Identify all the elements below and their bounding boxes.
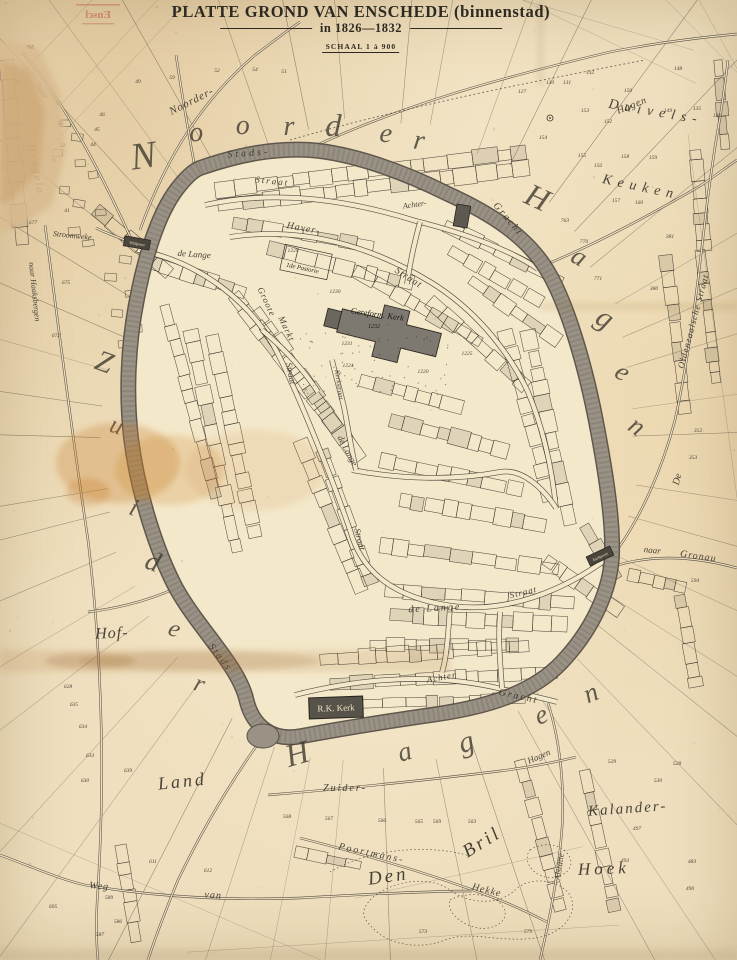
map-label: van [204, 889, 222, 901]
parcel-number: 135 [693, 106, 702, 112]
parcel-number: 675 [62, 280, 71, 286]
parcel-number: 41 [64, 207, 70, 214]
parcel-number: 763 [561, 218, 570, 224]
map-label: Hof- [94, 624, 129, 642]
parcel-number: 156 [594, 163, 603, 169]
parcel-number: 51 [281, 69, 287, 75]
parcel-number: 352 [693, 428, 703, 434]
catholic-church: R.K. Kerk [309, 696, 364, 719]
parcel-number: 493 [621, 857, 630, 864]
parcel-number: 148 [674, 65, 683, 72]
parcel-number: 639 [124, 768, 133, 774]
parcel-number: 1229 [288, 248, 299, 254]
parcel-number: 159 [649, 155, 658, 161]
parcel-number: 155 [578, 153, 587, 159]
district-letter: o [188, 116, 205, 148]
district-letter: r [284, 111, 295, 142]
parcel-number: 530 [654, 778, 663, 784]
district-letter: N [127, 133, 162, 179]
parcel-number: 149 [664, 107, 673, 114]
parcel-strip [673, 594, 704, 688]
map-label: Bril [459, 822, 505, 862]
parcel-number: 569 [433, 819, 442, 825]
parcel-number: 605 [49, 904, 58, 910]
windmill-icon [547, 115, 553, 121]
map-scale: SCHAAL 1 à 900 [323, 42, 400, 53]
map-label: De [671, 472, 685, 488]
district-letter: e [378, 117, 394, 149]
map-label: naar [643, 544, 661, 556]
parcel-number: 130 [546, 80, 555, 86]
parcel-number: 44 [90, 141, 96, 148]
district-letter: g [454, 724, 478, 760]
parcel-number: 528 [673, 761, 682, 767]
parcel-number: 1224 [343, 362, 354, 369]
district-letter: H [519, 175, 558, 219]
parcel-number: 54 [252, 66, 258, 73]
parcel-number: 152 [604, 119, 613, 125]
map-label: Gronau [679, 549, 717, 565]
protestant-church-number: 1232 [368, 324, 380, 330]
parcel-number: 594 [691, 577, 700, 584]
parcel-number: 497 [633, 825, 642, 832]
parcel-number: 380 [649, 286, 659, 292]
parcel-number: 586 [114, 919, 123, 925]
district-letter: r [412, 124, 427, 156]
parcel-number: 628 [64, 684, 73, 690]
title-rule-right [410, 28, 502, 30]
parcel-number: 353 [688, 455, 698, 461]
map-scale-row: SCHAAL 1 à 900 [172, 36, 551, 54]
parcel-number: 160 [635, 200, 644, 206]
parcel-number: 127 [518, 89, 527, 95]
parcel-number: 677 [29, 220, 38, 226]
map-canvas: Gereform. Kerk12321de PastorieR.K. KerkV… [0, 0, 737, 960]
parcel-number: 49 [135, 78, 141, 85]
parcel-strip [514, 758, 568, 912]
district-letter: n [623, 410, 652, 442]
parcel-number: 771 [594, 276, 603, 282]
parcel-number: 630 [81, 778, 90, 784]
map-subtitle-row: in 1826—1832 [172, 21, 551, 36]
red-stamp-bleed: Enscl [76, 4, 120, 24]
parcel-number: 132 [586, 70, 595, 76]
parcel-number: 587 [96, 932, 105, 938]
map-label: Den [366, 863, 410, 890]
parcel-number: 1231 [342, 341, 353, 347]
map-label: Alstätte [552, 852, 566, 882]
parcel-number: 568 [283, 814, 292, 820]
parcel-number: 635 [70, 702, 79, 708]
map-label: Stroomweke [52, 229, 92, 242]
district-letter: e [165, 614, 185, 643]
parcel-number: 150 [624, 88, 633, 94]
parcel-number: 634 [79, 723, 88, 730]
parcel-number: 154 [539, 134, 548, 141]
parcel-number: 563 [468, 819, 477, 825]
parcel-number: 566 [378, 818, 387, 824]
district-letter: r [190, 670, 209, 699]
parcel-number: 567 [325, 816, 334, 822]
parcel-number: 1220 [418, 369, 429, 375]
map-label: Poortmans- [337, 841, 406, 866]
parcel-number: 381 [665, 234, 675, 240]
district-letter: Z [91, 344, 118, 381]
parcel-number: 158 [621, 154, 630, 160]
parcel-number: 157 [612, 198, 621, 204]
map-label: Land [156, 769, 208, 794]
parcel-number: 153 [581, 108, 590, 114]
parcel-number: 1230 [330, 289, 341, 295]
scanned-map-page: Gereform. Kerk12321de PastorieR.K. KerkV… [0, 0, 737, 960]
district-letter: a [394, 735, 415, 768]
parcel-number: 611 [149, 859, 157, 865]
parcel-strip [627, 568, 688, 594]
parcel-number: 136 [713, 113, 722, 119]
parcel-number: 131 [563, 80, 572, 86]
parcel-number: 573 [419, 929, 428, 935]
parcel-number: 612 [204, 868, 213, 874]
parcel-number: 1225 [462, 351, 473, 357]
parcel-number: 529 [608, 759, 617, 765]
map-label: Kalander- [587, 798, 668, 820]
parcel-number: 45 [94, 126, 100, 133]
parcel-number: 579 [524, 929, 533, 935]
parcel-number: 490 [686, 885, 695, 892]
map-subtitle: in 1826—1832 [320, 21, 402, 36]
catholic-church-label: R.K. Kerk [317, 702, 355, 713]
district-letter: e [610, 356, 637, 388]
parcel-number: 483 [688, 858, 697, 865]
map-label: Duivels- [606, 97, 704, 129]
parcel-number: 59 [169, 75, 175, 81]
parcel-number: 770 [580, 239, 589, 245]
svg-text:Enscl: Enscl [85, 9, 111, 21]
parcel-number: 46 [99, 111, 105, 118]
map-title: PLATTE GROND VAN ENSCHEDE (binnenstad) [172, 2, 551, 22]
map-label: Weg [89, 880, 110, 892]
district-letter: o [235, 110, 250, 141]
parcel-number: 565 [415, 819, 424, 825]
parcel-number: 672 [52, 333, 61, 339]
map-title-block: PLATTE GROND VAN ENSCHEDE (binnenstad) i… [172, 2, 551, 54]
parcel-number: 589 [105, 895, 114, 901]
parcel-number: 633 [86, 753, 95, 759]
parcel-strip [578, 769, 621, 913]
district-letter: d [325, 107, 343, 144]
title-rule-left [220, 28, 312, 30]
map-label: naar Haaksbergen [27, 262, 42, 322]
parcel-number: 52 [214, 68, 220, 74]
map-label: Zuider- [323, 783, 367, 794]
map-label: Hekke [470, 881, 503, 899]
